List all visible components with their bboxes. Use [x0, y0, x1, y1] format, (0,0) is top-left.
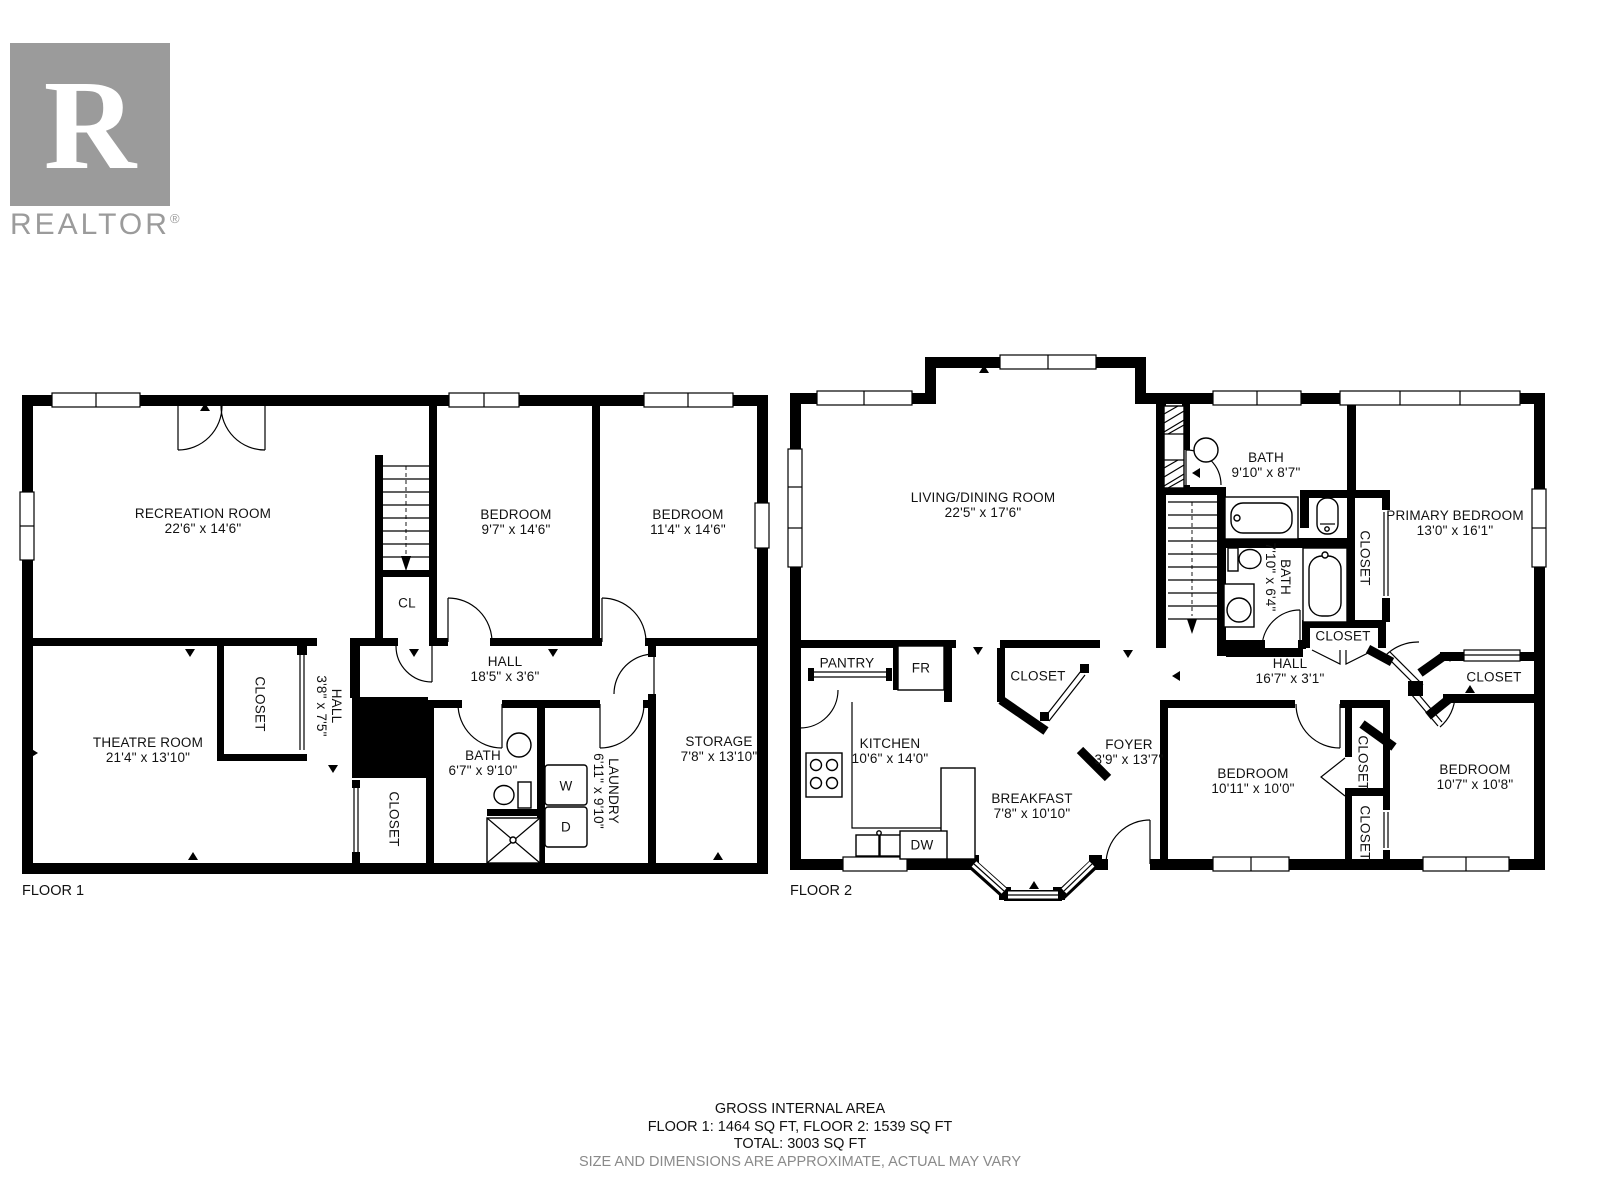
room-label-closet-mid-upper: CLOSET	[1356, 735, 1371, 790]
room-label-closet-lower: CLOSET	[387, 791, 402, 846]
room-label-living-dining: LIVING/DINING ROOM22'5" x 17'6"	[911, 490, 1056, 520]
room-label-hall1: HALL18'5" x 3'6"	[471, 654, 540, 684]
room-label-pantry: PANTRY	[820, 656, 875, 671]
room-label-storage: STORAGE7'8" x 13'10"	[681, 734, 758, 764]
room-label-entry-closet: CLOSET	[1010, 669, 1065, 684]
dishwasher-label: DW	[911, 838, 934, 853]
room-label-foyer: FOYER3'9" x 13'7"	[1095, 737, 1164, 767]
stairs-down-arrow	[1187, 619, 1197, 634]
room-label-bedroom3: BEDROOM10'11" x 10'0"	[1211, 766, 1294, 796]
toilet-tank-icon	[1228, 548, 1238, 571]
floor2-stairs	[1168, 502, 1217, 634]
room-label-hall2: HALL16'7" x 3'1"	[1256, 656, 1325, 686]
bath-sink-icon	[1194, 438, 1218, 462]
room-label-closet-right: CLOSET	[1466, 670, 1521, 685]
disclaimer-line: SIZE AND DIMENSIONS ARE APPROXIMATE, ACT…	[0, 1154, 1600, 1172]
room-label-bath-upper: BATH9'10" x 8'7"	[1232, 450, 1301, 480]
room-label-kitchen: KITCHEN10'6" x 14'0"	[852, 736, 929, 766]
stove-icon	[806, 753, 842, 797]
room-label-recreation: RECREATION ROOM22'6" x 14'6"	[135, 506, 271, 536]
washer-label: W	[560, 779, 573, 794]
dimension-ticks	[30, 365, 1475, 889]
floor-plan-drawing	[0, 0, 1600, 1200]
footer: GROSS INTERNAL AREA FLOOR 1: 1464 SQ FT,…	[0, 1101, 1600, 1171]
room-label-closet-mid-lower: CLOSET	[1358, 805, 1373, 860]
fridge-label: FR	[912, 661, 930, 676]
room-label-laundry: LAUNDRY6'11" x 9'10"	[591, 753, 621, 829]
toilet-tank-icon	[518, 782, 531, 808]
room-label-closet-hall: CLOSET	[1315, 629, 1370, 644]
floor-areas-line: FLOOR 1: 1464 SQ FT, FLOOR 2: 1539 SQ FT	[0, 1119, 1600, 1137]
room-label-bedroom-right: BEDROOM11'4" x 14'6"	[650, 507, 726, 537]
room-label-bath-lower: BATH7'10" x 6'4"	[1263, 543, 1293, 612]
floor2-tag: FLOOR 2	[790, 883, 852, 899]
stairs-down-arrow	[401, 556, 411, 571]
total-area-line: TOTAL: 3003 SQ FT	[0, 1136, 1600, 1154]
room-label-breakfast: BREAKFAST7'8" x 10'10"	[991, 791, 1072, 821]
room-label-closet-theatre: CLOSET	[253, 676, 268, 731]
floor1-stairs	[383, 466, 429, 571]
toilet-bowl-icon	[494, 786, 514, 805]
room-label-bedroom-left: BEDROOM9'7" x 14'6"	[480, 507, 551, 537]
room-label-theatre: THEATRE ROOM21'4" x 13'10"	[93, 735, 203, 765]
floor1-tag: FLOOR 1	[22, 883, 84, 899]
room-label-primary-bedroom: PRIMARY BEDROOM13'0" x 16'1"	[1386, 508, 1524, 538]
dryer-label: D	[561, 820, 571, 835]
room-label-cl: CL	[398, 596, 416, 611]
vanity-sink-icon	[1227, 598, 1251, 622]
kitchen-sink-icon	[856, 835, 879, 856]
toilet-bowl-icon	[1239, 550, 1261, 569]
room-label-bath1: BATH6'7" x 9'10"	[449, 748, 518, 778]
room-label-closet-primary: CLOSET	[1358, 530, 1373, 585]
gross-internal-area-title: GROSS INTERNAL AREA	[0, 1101, 1600, 1119]
room-label-bedroom4: BEDROOM10'7" x 10'8"	[1437, 762, 1514, 792]
chimney-box	[352, 697, 428, 778]
floor-plan-page: R REALTOR®	[0, 0, 1600, 1200]
room-label-hall-small: HALL3'8" x 7'5"	[314, 675, 344, 736]
floor2-chimney	[1164, 406, 1184, 488]
